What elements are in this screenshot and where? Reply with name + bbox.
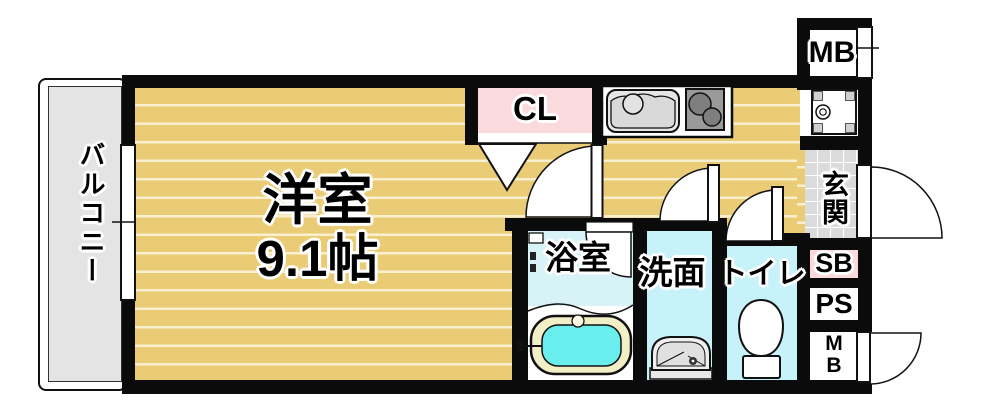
wall-pipespace-meterbox	[797, 320, 872, 332]
wall-washroom-toilet	[712, 218, 727, 380]
laundry-alcove-floor	[800, 88, 858, 136]
main-room-name-label: 洋室	[180, 172, 455, 230]
meter-box-top-label: MB	[802, 37, 862, 69]
balcony-label: バルコニー	[70, 118, 104, 308]
wall-closet-left	[465, 75, 478, 145]
meter-box-bottom-line1: M	[804, 333, 864, 355]
closet-label: CL	[495, 92, 575, 127]
meter-box-bottom-label: M B	[804, 333, 864, 377]
main-room-size-label: 9.1帖	[180, 232, 455, 286]
toilet-label: トイレ	[697, 259, 827, 289]
wall-right-upper	[858, 88, 872, 165]
corridor-floor-sliver	[797, 150, 805, 238]
wall-bath-block-top	[505, 218, 727, 231]
wall-closet-right	[592, 75, 607, 145]
entrance-door-icon	[857, 165, 942, 238]
floor-plan: バルコニー 洋室 9.1帖 CL MB 玄関 SB PS M B 浴室 洗面 ト…	[0, 0, 987, 406]
wall-left	[122, 75, 135, 394]
wall-bottom	[122, 380, 872, 394]
entrance-label: 玄関	[817, 158, 847, 238]
wall-entrance-top	[800, 136, 858, 150]
bathroom-tub-deck	[528, 306, 633, 380]
meter-box-bottom-line2: B	[804, 355, 864, 377]
pipe-space-label: PS	[804, 289, 864, 318]
meter-box-bottom-door-icon	[857, 332, 921, 384]
